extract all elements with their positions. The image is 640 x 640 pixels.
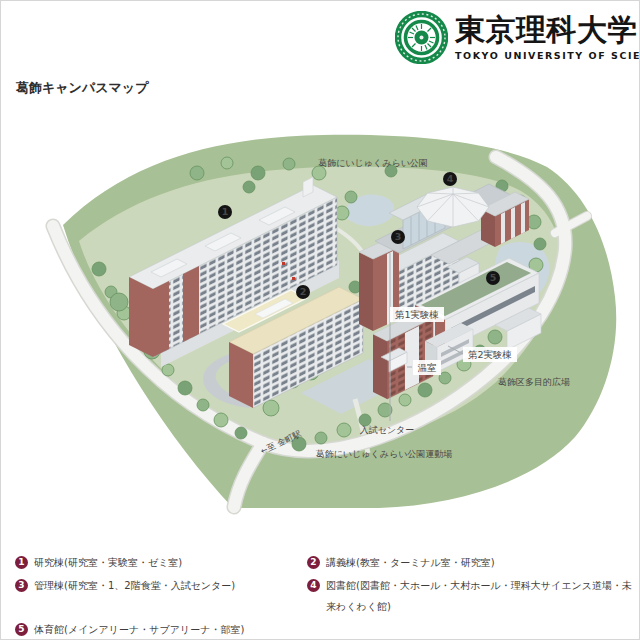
- tree-icon: [263, 400, 279, 416]
- legend-badge-4: 4: [307, 579, 320, 592]
- tree-icon: [178, 381, 192, 395]
- campus-map-page: 東京理科大学 TOKYO UNIVERSITY OF SCIENCE 葛飾キャン…: [0, 0, 640, 640]
- tree-icon: [235, 427, 247, 439]
- tree-icon: [337, 423, 351, 437]
- legend-badge-5: 5: [15, 623, 28, 636]
- legend-item-library: 4 図書館(図書館・大ホール・大村ホール・理科大サイエンス道場・未来わくわく館): [307, 575, 633, 617]
- tree-icon: [197, 399, 209, 411]
- map-badge-3: 3: [391, 230, 405, 244]
- tree-icon: [315, 432, 327, 444]
- legend-item-lecture: 2 講義棟(教室・ターミナル室・研究室): [307, 552, 495, 573]
- tree-icon: [283, 158, 295, 170]
- legend-badge-1: 1: [15, 556, 28, 569]
- tree-icon: [399, 394, 411, 406]
- label-park-sports-ground: 葛飾にいじゅくみらい公園運動場: [316, 449, 453, 459]
- map-badge-1: 1: [218, 205, 232, 219]
- tree-icon: [488, 330, 502, 344]
- tree-icon: [221, 157, 233, 169]
- tree-icon: [312, 166, 326, 180]
- tree-icon: [110, 293, 128, 311]
- label-admissions-center: 入試センター: [360, 425, 415, 435]
- label-multipurpose-plaza: 葛飾区多目的広場: [498, 377, 570, 387]
- tree-icon: [190, 166, 204, 180]
- label-greenhouse: 温室: [418, 362, 437, 373]
- label-experiment-1: 第1実験棟: [395, 309, 439, 320]
- tree-icon: [345, 191, 357, 203]
- legend-label-5: 体育館(メインアリーナ・サブアリーナ・部室): [34, 619, 244, 640]
- legend-label-4: 図書館(図書館・大ホール・大村ホール・理科大サイエンス道場・未来わくわく館): [326, 575, 633, 617]
- legend-label-1: 研究棟(研究室・実験室・ゼミ室): [34, 552, 182, 573]
- label-experiment-2: 第2実験棟: [468, 349, 512, 360]
- svg-text:1: 1: [222, 206, 229, 217]
- legend-item-gymnasium: 5 体育館(メインアリーナ・サブアリーナ・部室): [15, 619, 244, 640]
- map-badge-4: 4: [443, 172, 457, 186]
- svg-text:2: 2: [300, 286, 307, 297]
- legend-item-administration: 3 管理棟(研究室・1、2階食堂・入試センター): [15, 575, 235, 596]
- map-badge-2: 2: [296, 285, 310, 299]
- map-badge-5: 5: [486, 271, 500, 285]
- tree-icon: [162, 364, 174, 376]
- tree-icon: [214, 413, 228, 427]
- label-park: 葛飾にいじゅくみらい公園: [318, 158, 428, 168]
- svg-text:3: 3: [395, 231, 402, 242]
- tree-icon: [418, 383, 432, 397]
- legend-item-research: 1 研究棟(研究室・実験室・ゼミ室): [15, 552, 182, 573]
- tree-icon: [527, 215, 541, 229]
- tree-icon: [251, 166, 265, 180]
- tree-icon: [534, 238, 546, 250]
- svg-text:5: 5: [490, 272, 497, 283]
- svg-text:4: 4: [447, 173, 454, 184]
- legend-label-2: 講義棟(教室・ターミナル室・研究室): [326, 552, 495, 573]
- legend-badge-3: 3: [15, 579, 28, 592]
- tree-icon: [243, 181, 255, 193]
- campus-map-illustration: 第1実験棟 第2実験棟 温室 葛飾にいじゅくみらい公園 葛飾区多目的広場 入試セ…: [1, 1, 640, 640]
- tree-icon: [92, 262, 106, 276]
- legend-badge-2: 2: [307, 556, 320, 569]
- legend-label-3: 管理棟(研究室・1、2階食堂・入試センター): [34, 575, 235, 596]
